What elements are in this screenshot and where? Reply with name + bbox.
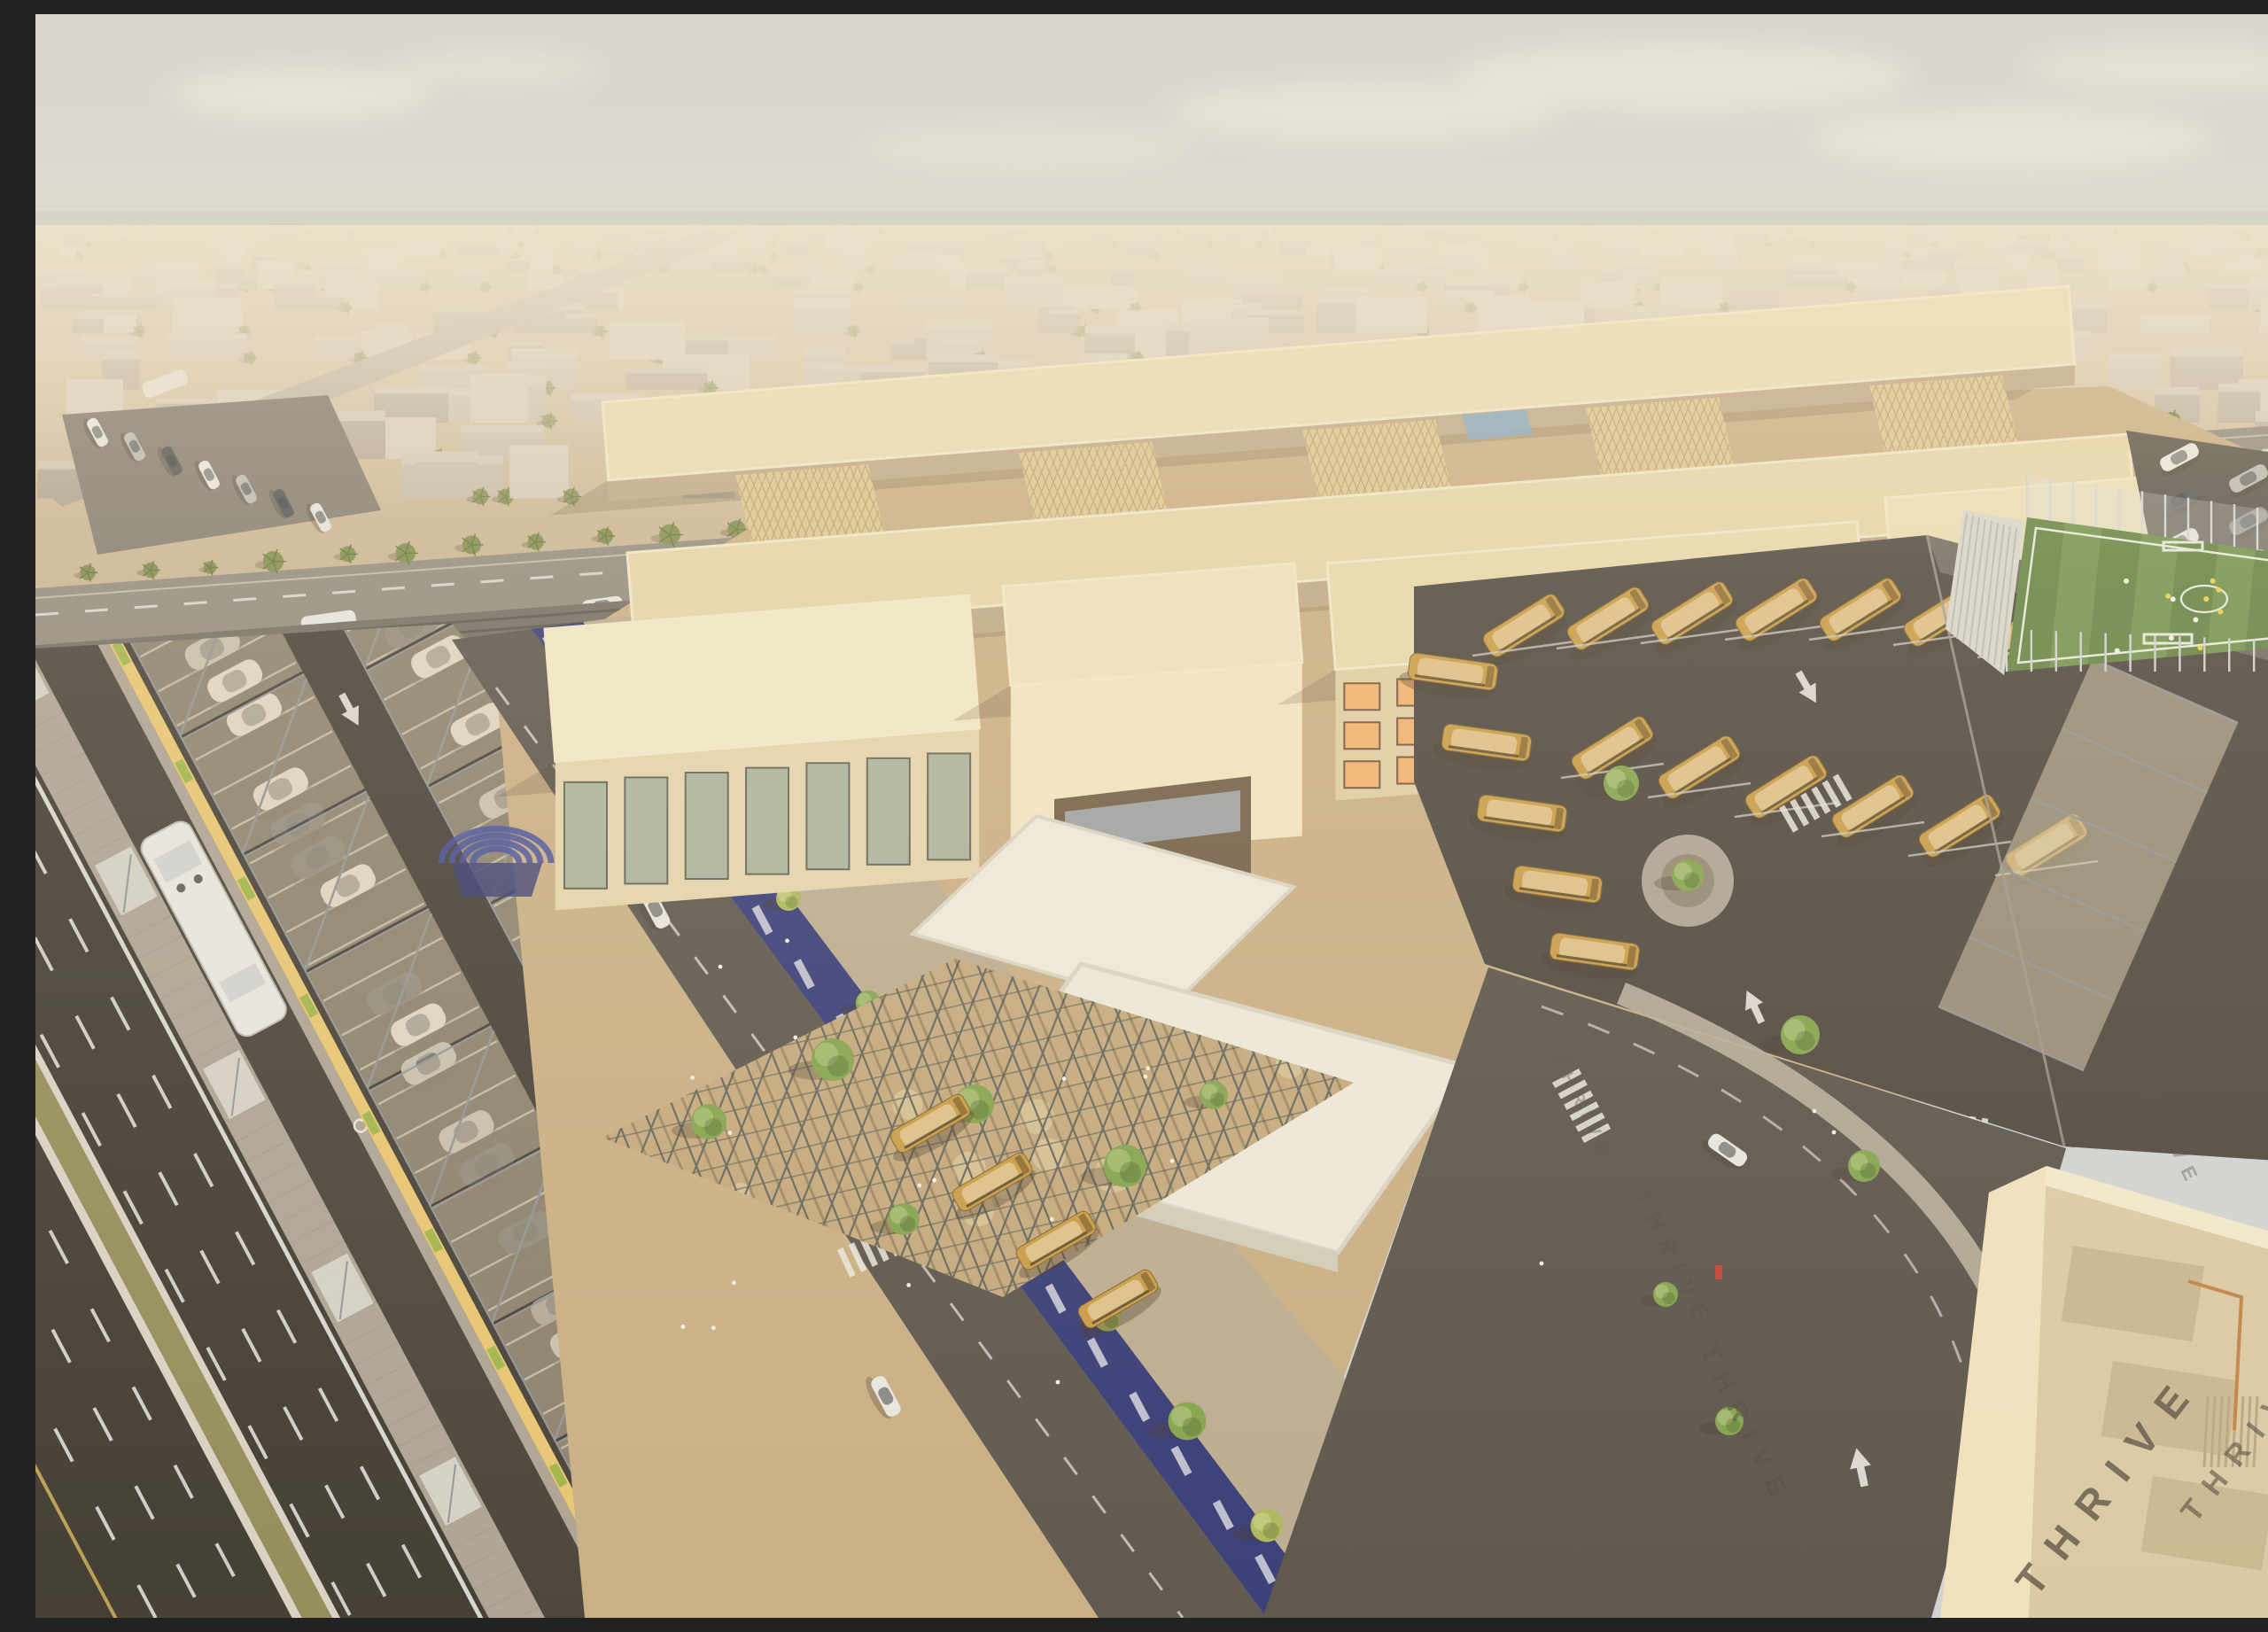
aerial-rendering: THRIVETHRIVETHRIVETHRIVETHRIVETHRIVE: [35, 14, 2268, 1618]
rendering-canvas: THRIVETHRIVETHRIVETHRIVETHRIVETHRIVE: [35, 14, 2268, 1618]
